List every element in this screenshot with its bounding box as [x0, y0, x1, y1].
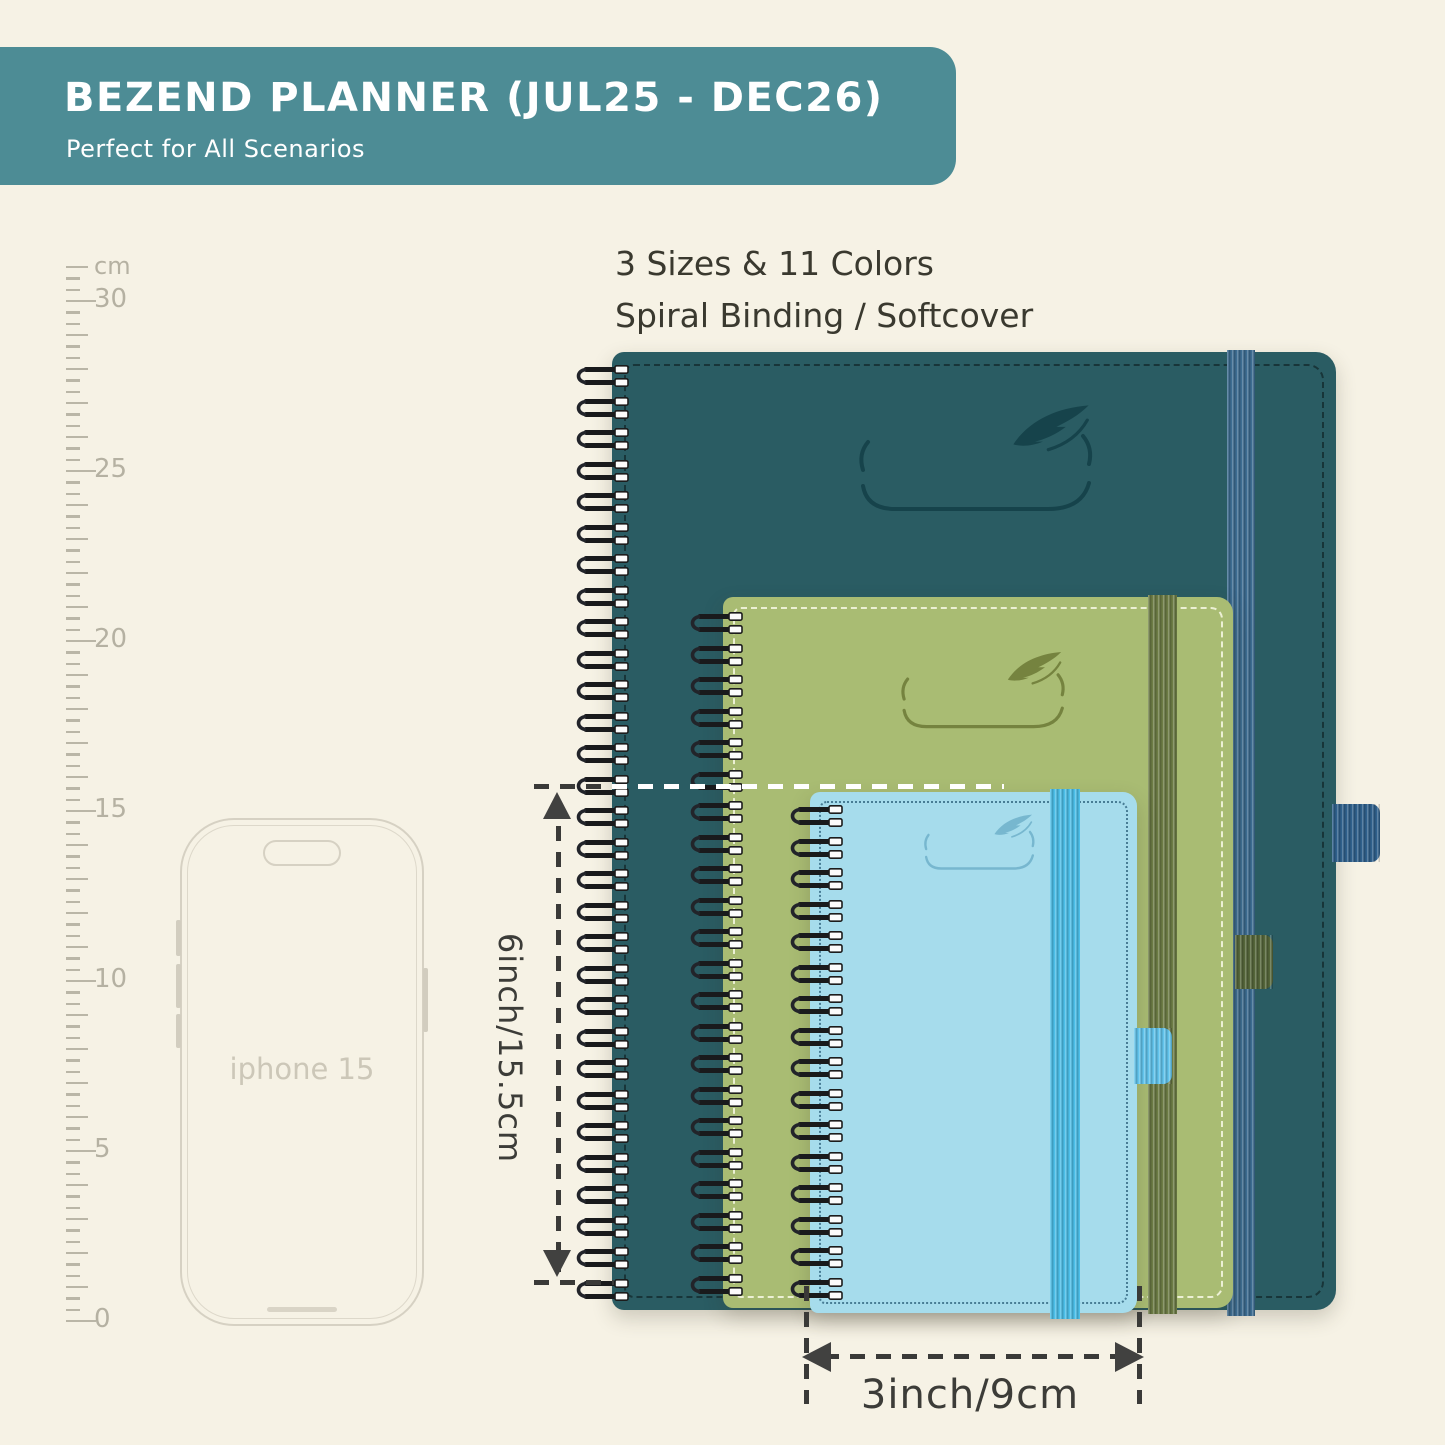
ruler-tick — [66, 1275, 80, 1277]
spiral-coil — [688, 1178, 746, 1202]
ruler-tick — [66, 413, 80, 415]
ruler-tick — [66, 527, 80, 529]
width-dimension-label: 3inch/9cm — [861, 1372, 1079, 1418]
ruler-tick — [66, 1218, 88, 1220]
spiral-coil — [788, 1088, 846, 1112]
ruler-tick — [66, 1263, 80, 1265]
spiral-coil — [574, 679, 632, 703]
spiral-coil — [788, 804, 846, 828]
ruler-tick — [66, 980, 96, 982]
spiral-binding — [574, 364, 632, 1309]
ruler-tick — [66, 787, 80, 789]
spiral-coil — [788, 867, 846, 891]
ruler-tick — [66, 1116, 88, 1118]
spiral-coil — [574, 1183, 632, 1207]
ruler-tick — [66, 561, 80, 563]
ruler-tick — [66, 1037, 80, 1039]
arrow-left-icon — [802, 1342, 831, 1372]
ruler-tick — [66, 1207, 80, 1209]
feature-line-binding: Spiral Binding / Softcover — [615, 290, 1033, 342]
spiral-coil — [688, 895, 746, 919]
logo-year-text: 2025-26 — [929, 837, 1029, 863]
phone-label: iphone 15 — [182, 1052, 422, 1086]
spiral-coil — [688, 926, 746, 950]
ruler-tick — [66, 1093, 80, 1095]
phone-outline: iphone 15 — [180, 818, 424, 1326]
spiral-coil — [574, 900, 632, 924]
spiral-coil — [788, 1182, 846, 1206]
spiral-coil — [688, 643, 746, 667]
spiral-coil — [788, 1056, 846, 1080]
ruler: cm302520151050 — [60, 250, 190, 1340]
planner-small: 2025-26 — [810, 792, 1137, 1313]
elastic-band — [1050, 789, 1080, 1319]
spiral-coil — [788, 1151, 846, 1175]
ruler-tick — [66, 368, 88, 370]
ruler-tick — [66, 912, 88, 914]
arrow-down-icon — [543, 1250, 571, 1277]
logo-year-text: 2025-26 — [910, 681, 1055, 720]
product-image: BEZEND PLANNER (JUL25 - DEC26) Perfect f… — [0, 0, 1445, 1445]
ruler-label: 20 — [94, 624, 127, 654]
ruler-label: 5 — [94, 1134, 111, 1164]
ruler-tick — [66, 493, 80, 495]
spiral-coil — [788, 1214, 846, 1238]
spiral-coil — [574, 1120, 632, 1144]
planner-logo: 2025-26 — [850, 408, 1100, 518]
spiral-coil — [574, 805, 632, 829]
phone-volume-up-button — [176, 964, 181, 1008]
spiral-coil — [688, 863, 746, 887]
ruler-tick — [66, 1150, 96, 1152]
ruler-tick — [66, 923, 80, 925]
ruler-tick — [66, 459, 80, 461]
spiral-coil — [788, 930, 846, 954]
ruler-tick — [66, 1025, 80, 1027]
ruler-tick — [66, 391, 80, 393]
height-extension-line-bottom — [534, 1280, 614, 1285]
ruler-tick — [66, 595, 80, 597]
spiral-coil — [574, 616, 632, 640]
ruler-tick — [66, 651, 80, 653]
ruler-tick — [66, 289, 80, 291]
spiral-coil — [688, 1021, 746, 1045]
pen-loop — [1332, 804, 1380, 862]
spiral-coil — [574, 396, 632, 420]
ruler-label: 15 — [94, 794, 127, 824]
ruler-tick — [66, 1071, 80, 1073]
ruler-tick — [66, 640, 96, 642]
spiral-coil — [688, 1084, 746, 1108]
spiral-coil — [688, 706, 746, 730]
spiral-coil — [688, 989, 746, 1013]
spiral-coil — [688, 1210, 746, 1234]
ruler-tick — [66, 323, 80, 325]
ruler-tick — [66, 1286, 88, 1288]
spiral-coil — [688, 737, 746, 761]
ruler-tick — [66, 969, 80, 971]
ruler-tick — [66, 583, 80, 585]
ruler-label: 0 — [94, 1304, 111, 1334]
arrow-right-icon — [1115, 1342, 1144, 1372]
ruler-tick — [66, 504, 88, 506]
spiral-coil — [574, 1026, 632, 1050]
ruler-tick — [66, 731, 80, 733]
spiral-coil — [574, 1089, 632, 1113]
ruler-tick — [66, 1014, 88, 1016]
ruler-tick — [66, 991, 80, 993]
ruler-tick — [66, 538, 88, 540]
ruler-tick — [66, 674, 88, 676]
pen-loop — [1134, 1028, 1172, 1084]
feather-icon — [1003, 651, 1066, 685]
pen-loop — [1235, 935, 1273, 989]
spiral-coil — [688, 674, 746, 698]
stitching — [819, 801, 1128, 1304]
spiral-coil — [574, 648, 632, 672]
elastic-band — [1148, 595, 1177, 1314]
ruler-tick — [66, 1003, 80, 1005]
header-banner: BEZEND PLANNER (JUL25 - DEC26) Perfect f… — [0, 47, 956, 185]
ruler-tick — [66, 300, 96, 302]
ruler-tick — [66, 946, 88, 948]
ruler-tick — [66, 572, 88, 574]
height-dimension-line — [556, 800, 561, 1272]
spiral-coil — [788, 1025, 846, 1049]
ruler-tick — [66, 1297, 80, 1299]
spiral-coil — [574, 522, 632, 546]
spiral-coil — [688, 1147, 746, 1171]
ruler-tick — [66, 1195, 80, 1197]
ruler-tick — [66, 1229, 80, 1231]
ruler-tick — [66, 776, 88, 778]
spiral-coil — [574, 585, 632, 609]
spiral-coil — [574, 1215, 632, 1239]
phone-power-button — [423, 968, 428, 1032]
ruler-tick — [66, 277, 80, 279]
ruler-tick — [66, 379, 80, 381]
ruler-tick — [66, 742, 88, 744]
spiral-coil — [688, 800, 746, 824]
ruler-tick — [66, 629, 80, 631]
width-dimension-line — [824, 1354, 1122, 1359]
ruler-tick — [66, 470, 96, 472]
spiral-coil — [688, 832, 746, 856]
home-indicator — [267, 1307, 337, 1312]
ruler-tick — [66, 821, 80, 823]
ruler-tick — [66, 311, 80, 313]
ruler-tick — [66, 663, 80, 665]
ruler-tick — [66, 1184, 88, 1186]
ruler-tick — [66, 606, 88, 608]
ruler-unit-label: cm — [94, 252, 131, 280]
ruler-tick — [66, 685, 80, 687]
spiral-coil — [788, 836, 846, 860]
ruler-tick — [66, 1161, 80, 1163]
dynamic-island — [263, 840, 341, 866]
spiral-coil — [788, 962, 846, 986]
ruler-tick — [66, 1127, 80, 1129]
spiral-coil — [574, 1057, 632, 1081]
spiral-coil — [788, 993, 846, 1017]
ruler-tick — [66, 334, 88, 336]
spiral-coil — [688, 611, 746, 635]
spiral-coil — [574, 459, 632, 483]
spiral-binding — [688, 611, 746, 1304]
ruler-tick — [66, 810, 96, 812]
ruler-tick — [66, 765, 80, 767]
spiral-coil — [688, 958, 746, 982]
ruler-label: 25 — [94, 454, 127, 484]
ruler-tick — [66, 697, 80, 699]
spiral-coil — [574, 490, 632, 514]
ruler-tick — [66, 799, 80, 801]
ruler-tick — [66, 549, 80, 551]
spiral-coil — [574, 711, 632, 735]
ruler-tick — [66, 357, 80, 359]
ruler-tick — [66, 1252, 88, 1254]
spiral-coil — [574, 994, 632, 1018]
spiral-coil — [574, 837, 632, 861]
ruler-tick — [66, 867, 80, 869]
ruler-label: 10 — [94, 964, 127, 994]
ruler-tick — [66, 402, 88, 404]
feather-icon — [1006, 404, 1096, 452]
product-title: BEZEND PLANNER (JUL25 - DEC26) — [64, 75, 884, 121]
spiral-coil — [574, 868, 632, 892]
ruler-tick — [66, 719, 80, 721]
planner-logo: 2025-26 — [895, 655, 1070, 733]
spiral-coil — [574, 364, 632, 388]
product-subtitle: Perfect for All Scenarios — [66, 135, 365, 163]
phone-action-button — [176, 920, 181, 956]
spiral-coil — [688, 1115, 746, 1139]
ruler-tick — [66, 878, 88, 880]
spiral-coil — [688, 1273, 746, 1297]
spiral-coil — [688, 1241, 746, 1265]
planner-logo: 2025-26 — [920, 818, 1038, 873]
spiral-coil — [788, 899, 846, 923]
ruler-tick — [66, 889, 80, 891]
spiral-coil — [788, 1119, 846, 1143]
ruler-tick — [66, 266, 88, 268]
ruler-tick — [66, 855, 80, 857]
ruler-tick — [66, 957, 80, 959]
spiral-coil — [574, 963, 632, 987]
ruler-tick — [66, 1173, 80, 1175]
spiral-coil — [574, 1246, 632, 1270]
height-dimension-label: 6inch/15.5cm — [491, 933, 529, 1163]
spiral-coil — [788, 1245, 846, 1269]
ruler-tick — [66, 481, 80, 483]
spiral-coil — [574, 742, 632, 766]
ruler-tick — [66, 753, 80, 755]
ruler-tick — [66, 935, 80, 937]
spiral-coil — [688, 1052, 746, 1076]
ruler-tick — [66, 447, 80, 449]
ruler-tick — [66, 1082, 88, 1084]
ruler-tick — [66, 617, 80, 619]
feature-text: 3 Sizes & 11 Colors Spiral Binding / Sof… — [615, 238, 1033, 342]
spiral-binding — [788, 804, 846, 1308]
ruler-tick — [66, 1139, 80, 1141]
spiral-coil — [574, 427, 632, 451]
ruler-tick — [66, 844, 88, 846]
ruler-tick — [66, 1241, 80, 1243]
ruler-tick — [66, 345, 80, 347]
ruler-tick — [66, 1105, 80, 1107]
spiral-coil — [574, 1152, 632, 1176]
ruler-tick — [66, 1059, 80, 1061]
ruler-tick — [66, 1048, 88, 1050]
feather-icon — [992, 814, 1034, 838]
ruler-tick — [66, 833, 80, 835]
height-extension-line-top — [534, 784, 612, 789]
arrow-up-icon — [543, 792, 571, 819]
spiral-coil — [688, 769, 746, 793]
ruler-tick — [66, 1320, 96, 1322]
ruler-tick — [66, 901, 80, 903]
spiral-coil — [574, 553, 632, 577]
spiral-coil — [574, 931, 632, 955]
feature-line-sizes: 3 Sizes & 11 Colors — [615, 238, 1033, 290]
ruler-label: 30 — [94, 284, 127, 314]
ruler-tick — [66, 708, 88, 710]
spiral-coil — [788, 1277, 846, 1301]
ruler-tick — [66, 436, 88, 438]
height-extension-line-top-over-covers — [612, 784, 1004, 789]
ruler-tick — [66, 1309, 80, 1311]
ruler-tick — [66, 425, 80, 427]
ruler-tick — [66, 515, 80, 517]
phone-volume-down-button — [176, 1014, 181, 1048]
